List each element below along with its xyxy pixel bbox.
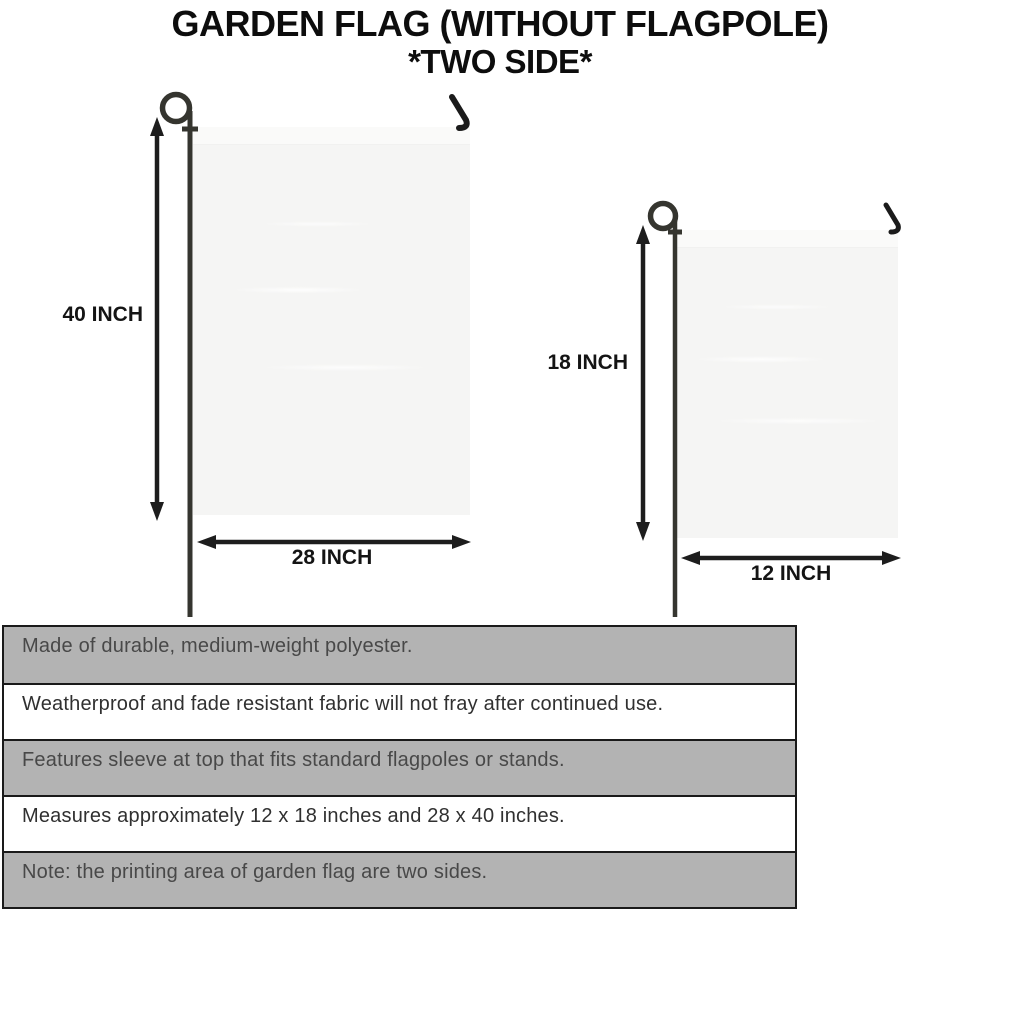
small-flag-sleeve [677,230,898,248]
large-flag-fabric [193,127,470,515]
page-subtitle: *TWO SIDE* [0,44,1000,80]
header: GARDEN FLAG (WITHOUT FLAGPOLE) *TWO SIDE… [0,4,1000,80]
large-width-label: 28 INCH [232,546,432,570]
table-row: Measures approximately 12 x 18 inches an… [4,795,795,851]
feature-text: Weatherproof and fade resistant fabric w… [22,693,663,715]
table-row: Made of durable, medium-weight polyester… [4,627,795,683]
table-row: Weatherproof and fade resistant fabric w… [4,683,795,739]
table-row: Features sleeve at top that fits standar… [4,739,795,795]
feature-text: Made of durable, medium-weight polyester… [22,635,413,657]
small-width-label: 12 INCH [691,562,891,586]
table-row: Note: the printing area of garden flag a… [4,851,795,907]
large-hook-icon [452,97,467,128]
small-height-arrow-icon [636,225,650,541]
feature-text: Features sleeve at top that fits standar… [22,749,565,771]
small-height-label: 18 INCH [523,351,628,375]
features-table: Made of durable, medium-weight polyester… [2,625,797,909]
small-hook-icon [886,205,898,232]
feature-text: Note: the printing area of garden flag a… [22,861,487,883]
feature-text: Measures approximately 12 x 18 inches an… [22,805,565,827]
garden-flag-size-chart: GARDEN FLAG (WITHOUT FLAGPOLE) *TWO SIDE… [0,0,1024,1024]
large-height-arrow-icon [150,117,164,521]
page-title: GARDEN FLAG (WITHOUT FLAGPOLE) [0,4,1000,44]
small-flag-fabric [677,230,898,538]
large-height-label: 40 INCH [38,303,143,327]
large-flag-sleeve [193,127,470,145]
